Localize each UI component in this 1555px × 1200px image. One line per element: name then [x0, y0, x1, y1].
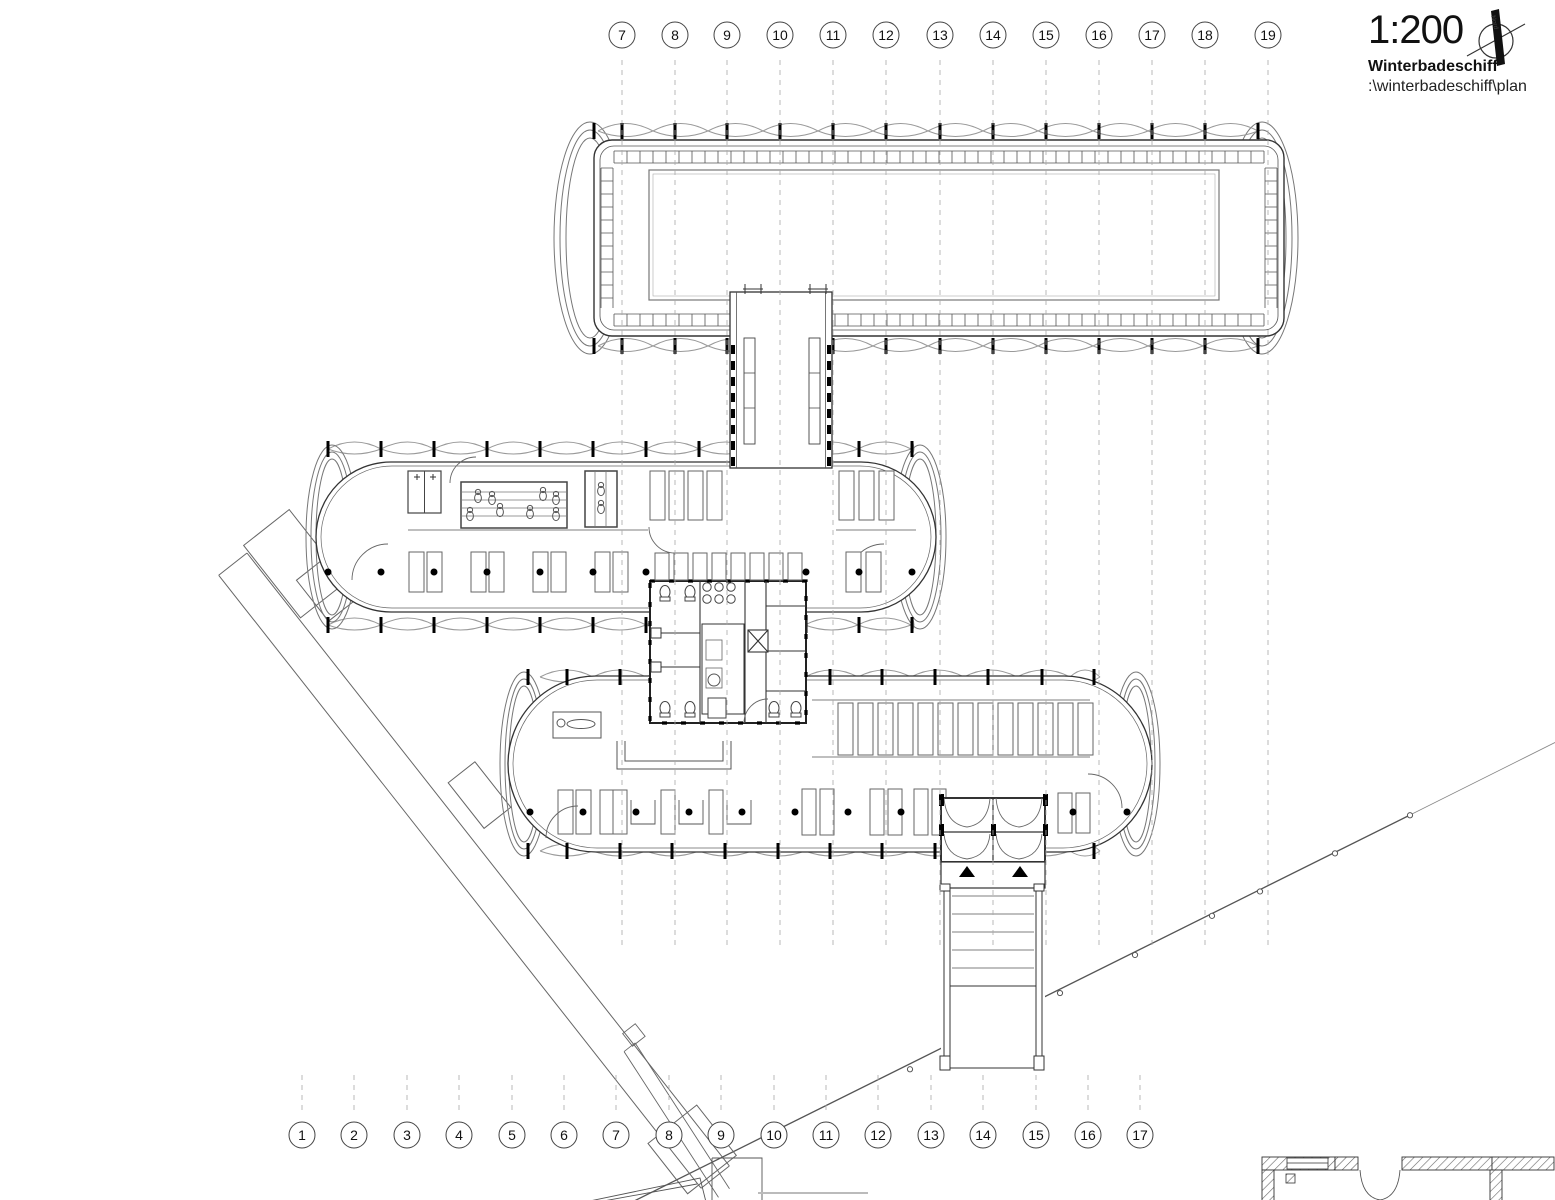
plan-linework	[845, 809, 852, 816]
plan-linework	[911, 441, 914, 457]
plan-linework	[592, 441, 595, 457]
plan-linework	[856, 569, 863, 576]
plan-linework	[380, 441, 383, 457]
building-fragment-bottom-right	[1262, 1157, 1554, 1200]
plan-linework	[777, 843, 780, 859]
plan-linework	[619, 669, 622, 685]
plan-linework	[1034, 884, 1044, 891]
plan-linework	[539, 617, 542, 633]
plan-linework	[685, 597, 695, 601]
plan-linework	[1043, 794, 1048, 806]
plan-linework	[380, 617, 383, 633]
plan-linework	[590, 569, 597, 576]
plan-linework	[898, 809, 905, 816]
plan-linework	[651, 628, 661, 638]
plan-linework	[551, 552, 566, 592]
grid-bubble-label: 11	[826, 27, 841, 43]
plan-linework	[325, 569, 332, 576]
plan-linework	[328, 618, 914, 630]
plan-linework	[592, 617, 595, 633]
plan-linework	[461, 482, 567, 528]
plan-linework	[585, 471, 617, 527]
grid-bubble-label: 18	[1197, 27, 1213, 43]
plan-linework	[433, 441, 436, 457]
grid-bubble-label: 4	[455, 1127, 463, 1143]
plan-linework	[712, 1158, 762, 1200]
plan-linework	[870, 789, 884, 835]
plan-linework	[558, 790, 573, 834]
plan-linework	[750, 553, 764, 580]
grid-bubble-label: 9	[717, 1127, 725, 1143]
plan-linework	[1257, 338, 1260, 354]
plan-linework	[1407, 813, 1412, 818]
plan-linework	[378, 569, 385, 576]
plan-linework	[744, 338, 755, 444]
plan-linework	[698, 441, 701, 457]
sauna-barge	[500, 669, 1160, 862]
plan-linework	[991, 824, 996, 836]
file-path: :\winterbadeschiff\plan	[1368, 78, 1555, 96]
changing-barge	[306, 441, 946, 633]
plan-linework	[1412, 742, 1555, 814]
plan-linework	[693, 553, 707, 580]
plan-linework	[803, 569, 810, 576]
grid-bubble-label: 3	[403, 1127, 411, 1143]
grid-bubble-label: 16	[1091, 27, 1107, 43]
plan-linework	[1093, 843, 1096, 859]
plan-linework	[527, 809, 534, 816]
plan-linework	[566, 843, 569, 859]
grid-bubble-label: 10	[766, 1127, 782, 1143]
grid-bubble-label: 16	[1080, 1127, 1096, 1143]
plan-linework	[724, 843, 727, 859]
plan-linework	[769, 713, 779, 717]
floor-plan-canvas: 7891011121314151617181912345678910111213…	[0, 0, 1555, 1200]
plan-linework	[898, 703, 913, 755]
plan-linework	[1124, 809, 1131, 816]
plan-linework	[998, 703, 1013, 755]
plan-linework	[1492, 1157, 1554, 1170]
building-fragment-bottom-center	[585, 1158, 868, 1200]
plan-linework	[1262, 1170, 1274, 1200]
plan-linework	[820, 789, 834, 835]
plan-linework	[645, 617, 648, 633]
plan-linework	[1058, 703, 1073, 755]
plan-linework	[651, 662, 661, 672]
plan-linework	[688, 471, 703, 520]
plan-linework	[431, 569, 438, 576]
grid-bubble-label: 13	[932, 27, 948, 43]
grid-bubble-label: 2	[350, 1127, 358, 1143]
plan-linework	[486, 617, 489, 633]
grid-bubble-label: 15	[1038, 27, 1054, 43]
grid-bubble-label: 13	[923, 1127, 939, 1143]
plan-linework	[661, 790, 675, 834]
plan-linework	[1043, 824, 1048, 836]
plan-linework	[580, 809, 587, 816]
title-block: 1:200 Nord Winterbadeschiff :\winterbade…	[1368, 8, 1555, 96]
plan-linework	[660, 713, 670, 717]
plan-linework	[911, 617, 914, 633]
plan-linework	[881, 669, 884, 685]
grid-bubble-label: 10	[772, 27, 788, 43]
plan-linework	[809, 338, 820, 444]
plan-linework	[918, 703, 933, 755]
plan-linework	[769, 553, 783, 580]
plan-linework	[712, 553, 726, 580]
plan-linework	[595, 552, 610, 592]
plan-linework	[486, 441, 489, 457]
plan-linework	[1402, 1157, 1492, 1170]
plan-linework	[731, 553, 745, 580]
plan-linework	[1132, 952, 1137, 957]
plan-linework	[1332, 851, 1337, 856]
plan-linework	[484, 569, 491, 576]
plan-linework	[619, 843, 622, 859]
plan-linework	[858, 441, 861, 457]
plan-linework	[585, 1178, 706, 1200]
plan-linework	[1041, 669, 1044, 685]
plan-linework	[527, 669, 530, 685]
plan-linework	[409, 552, 424, 592]
plan-linework	[1070, 809, 1077, 816]
plan-linework	[839, 471, 854, 520]
plan-linework	[593, 338, 596, 354]
plan-linework	[613, 790, 627, 834]
grid-bubble-label: 1	[298, 1127, 306, 1143]
plan-linework	[539, 441, 542, 457]
plan-linework	[934, 669, 937, 685]
plan-linework	[566, 669, 569, 685]
plan-linework	[987, 669, 990, 685]
grid-bubble-label: 17	[1144, 27, 1160, 43]
plan-linework	[489, 552, 504, 592]
plan-linework	[940, 884, 950, 891]
plan-linework	[327, 441, 330, 457]
grid-bubble-label: 17	[1132, 1127, 1148, 1143]
grid-bubble-label: 8	[665, 1127, 673, 1143]
plan-linework	[1078, 703, 1093, 755]
plan-linework	[594, 140, 1284, 336]
plan-linework	[553, 712, 601, 738]
plan-linework	[829, 669, 832, 685]
plan-linework	[792, 809, 799, 816]
plan-linework	[433, 617, 436, 633]
plan-linework	[829, 843, 832, 859]
plan-linework	[1286, 1174, 1295, 1183]
plan-linework	[1257, 123, 1260, 139]
grid-bubble-label: 7	[612, 1127, 620, 1143]
plan-linework	[934, 843, 937, 859]
grid-bubble-label: 9	[723, 27, 731, 43]
plan-linework	[709, 790, 723, 834]
grid-bubble-label: 15	[1028, 1127, 1044, 1143]
plan-linework	[633, 809, 640, 816]
grid-bubble-label: 7	[618, 27, 626, 43]
plan-linework	[650, 471, 665, 520]
plan-linework	[881, 843, 884, 859]
plan-linework	[598, 124, 1258, 137]
plan-linework	[1038, 703, 1053, 755]
plan-linework	[838, 703, 853, 755]
plan-linework	[708, 698, 726, 718]
plan-linework	[613, 552, 628, 592]
grid-bubble-label: 6	[560, 1127, 568, 1143]
plan-linework	[1360, 1170, 1400, 1200]
plan-linework	[907, 1067, 912, 1072]
plan-linework	[1093, 669, 1096, 685]
pool-barge	[554, 122, 1298, 354]
plan-linework	[643, 569, 650, 576]
plan-linework	[660, 597, 670, 601]
plan-linework	[1018, 703, 1033, 755]
grid-bubble-label: 12	[878, 27, 894, 43]
plan-linework	[327, 617, 330, 633]
grid-bubble-label: 11	[819, 1127, 834, 1143]
plan-linework	[671, 843, 674, 859]
grid-bubble-label: 19	[1260, 27, 1276, 43]
grid-bubble-label: 8	[671, 27, 679, 43]
plan-linework	[858, 703, 873, 755]
plan-linework	[598, 339, 1258, 352]
plan-linework	[802, 789, 816, 835]
plan-linework	[978, 703, 993, 755]
connector-bridge	[730, 284, 832, 468]
plan-linework	[914, 789, 928, 835]
plan-linework	[1335, 1157, 1358, 1170]
plan-linework	[878, 703, 893, 755]
plan-linework	[879, 471, 894, 520]
plan-linework	[788, 553, 802, 580]
plan-linework	[537, 569, 544, 576]
grid-bubble-label: 14	[975, 1127, 991, 1143]
plan-linework	[527, 843, 530, 859]
plan-linework	[940, 1056, 950, 1070]
plan-linework	[1490, 1170, 1502, 1200]
plan-linework	[686, 809, 693, 816]
grid-bubble-label: 14	[985, 27, 1001, 43]
plan-linework	[1076, 793, 1090, 833]
grid-bubble-label: 5	[508, 1127, 516, 1143]
plan-linework	[1057, 990, 1062, 995]
plan-linework	[791, 713, 801, 717]
plan-linework	[593, 123, 596, 139]
plan-linework	[859, 471, 874, 520]
plan-linework	[655, 553, 669, 580]
plan-linework	[739, 809, 746, 816]
grid-bubble-label: 12	[870, 1127, 886, 1143]
plan-linework	[707, 471, 722, 520]
plan-linework	[674, 553, 688, 580]
gangway-ramp	[940, 862, 1045, 1070]
plan-linework	[645, 441, 648, 457]
plan-linework	[685, 713, 695, 717]
plan-linework	[1034, 1056, 1044, 1070]
north-arrow-icon: Nord	[1464, 8, 1528, 72]
plan-linework	[909, 569, 916, 576]
plan-linework	[669, 471, 684, 520]
plan-linework	[866, 552, 881, 592]
plan-linework	[1209, 913, 1214, 918]
plan-linework	[958, 703, 973, 755]
plan-linework	[858, 617, 861, 633]
plan-linework	[1287, 1158, 1328, 1169]
plan-linework	[1257, 889, 1262, 894]
